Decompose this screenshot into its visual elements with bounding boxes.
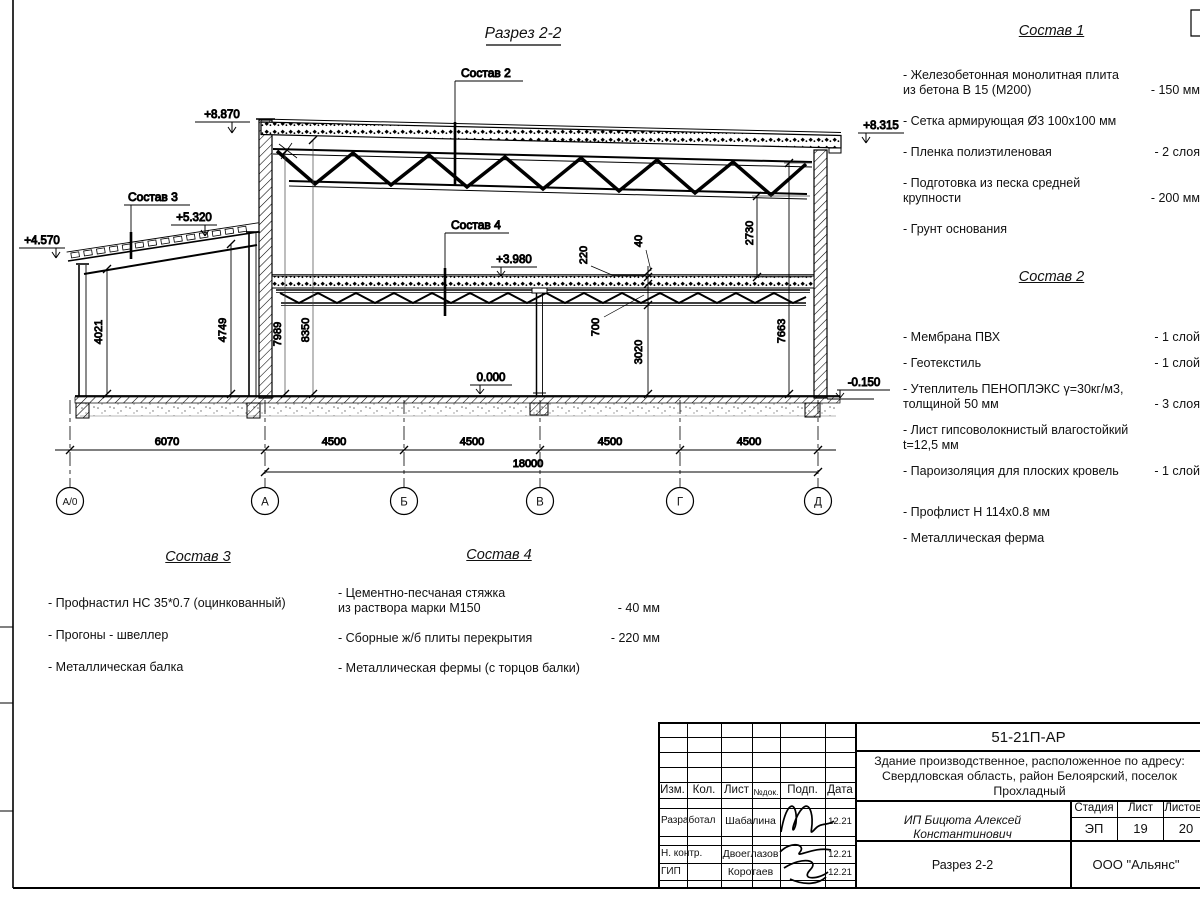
client-name: ИП Бицюта Алексей Константинович	[857, 813, 1068, 841]
dim-4749: 4749	[217, 240, 235, 398]
drawing-title-text: Разрез 2-2	[485, 25, 562, 42]
list-item: - Металлическая балка	[48, 660, 348, 675]
sheets-total: 20	[1164, 821, 1200, 836]
project-name-line: Здание производственное, расположенное п…	[857, 754, 1200, 768]
project-name-line: Прохладный	[857, 784, 1200, 798]
drawing-title: Разрез 2-2	[485, 25, 562, 45]
dim-label: 7663	[776, 319, 788, 343]
list-item: - Профлист Н 114х0.8 мм	[903, 505, 1200, 520]
sostav2-title: Состав 2	[903, 270, 1200, 288]
list-item: - Профнастил НС 35*0.7 (оцинкованный)	[48, 596, 348, 611]
dim-label: 8350	[300, 318, 312, 342]
list-item: - Сетка армирующая Ø3 100х100 мм	[903, 114, 1200, 129]
column-v	[532, 288, 547, 396]
elevation-label: +4.570	[24, 235, 60, 247]
name-cell: Шабалина	[721, 815, 780, 827]
col-header: Дата	[825, 784, 855, 796]
callout-label: Состав 3	[128, 190, 178, 204]
axis-label: А/0	[62, 497, 77, 508]
dim-slab-stack: 40 220 700 3020	[578, 235, 652, 398]
wall-left	[259, 120, 272, 398]
project-name-line: Свердловская область, район Белоярский, …	[857, 769, 1200, 783]
list-item: - Металлическая ферма	[903, 531, 1200, 546]
role-cell: Н. контр.	[661, 848, 719, 859]
dim-label: 4500	[322, 436, 346, 448]
dim-label: 40	[633, 235, 645, 247]
list-item: - Грунт основания	[903, 222, 1200, 237]
elevation-label: -0.150	[848, 377, 881, 389]
list-item: - Прогоны - швеллер	[48, 628, 348, 643]
sostav4-list: Состав 4 - Цементно-песчаная стяжка из р…	[338, 548, 660, 691]
list-item: - Лист гипсоволокнистый влагостойкий t=1…	[903, 423, 1200, 453]
list-item: - Пленка полиэтиленовая - 2 слоя	[903, 145, 1200, 160]
sheet-title-cell: Разрез 2-2	[855, 858, 1070, 872]
sheets-label: Листов	[1164, 802, 1200, 814]
axis-label: Д	[814, 497, 822, 509]
axis-label: А	[261, 497, 269, 509]
col-header: Лист	[721, 784, 752, 796]
col-header: №док.	[752, 787, 780, 797]
dim-label: 4500	[598, 436, 622, 448]
sostav1-title: Состав 1	[903, 24, 1200, 42]
list-item: - Цементно-песчаная стяжка из раствора м…	[338, 586, 660, 616]
list-item: - Сборные ж/б плиты перекрытия - 220 мм	[338, 631, 660, 646]
sostav1-list: Состав 1 - Железобетонная монолитная пли…	[903, 24, 1200, 253]
floor-ground	[75, 396, 874, 418]
dim-label: 4500	[737, 436, 761, 448]
foundation-pad	[247, 403, 260, 418]
dim-label: 18000	[513, 458, 544, 470]
axis-label: Г	[677, 497, 684, 509]
sostav4-title: Состав 4	[338, 548, 660, 566]
list-item: - Мембрана ПВХ - 1 слой	[903, 330, 1200, 345]
sostav3-title: Состав 3	[48, 550, 348, 568]
company-name: ООО "Альянс"	[1070, 857, 1200, 872]
list-item: - Железобетонная монолитная плита из бет…	[903, 68, 1200, 98]
wall-right	[814, 150, 827, 398]
col-header: Изм.	[658, 784, 687, 796]
elevation-marks: +8.870 +8.315 +4.570 +5.320 +3.980 0.000…	[19, 109, 904, 398]
stage-label: Стадия	[1071, 802, 1117, 814]
axis-label: Б	[400, 497, 408, 509]
elevation-label: +3.980	[496, 254, 532, 266]
elevation-label: 0.000	[477, 372, 506, 384]
foundation-pad	[76, 403, 89, 418]
roof-truss	[273, 143, 812, 199]
foundation-pad	[530, 403, 548, 415]
dim-label: 220	[578, 246, 590, 264]
name-cell: Двоеглазов	[721, 848, 780, 860]
callout-label: Состав 2	[461, 66, 511, 80]
dim-label: 700	[590, 318, 602, 336]
role-cell: ГИП	[661, 866, 719, 877]
dim-2730: 2730	[744, 192, 812, 281]
dim-label: 2730	[744, 221, 756, 245]
list-item: - Подготовка из песка средней крупности …	[903, 176, 1200, 206]
sostav3-list: Состав 3 - Профнастил НС 35*0.7 (оцинков…	[48, 550, 348, 692]
axis-bubbles: А/0 А Б В Г Д	[57, 488, 832, 515]
list-item: - Геотекстиль - 1 слой	[903, 356, 1200, 371]
doc-number: 51-21П-АР	[855, 729, 1200, 746]
sheet-label: Лист	[1118, 802, 1163, 814]
dim-label: 4500	[460, 436, 484, 448]
elevation-label: +8.870	[204, 109, 240, 121]
role-cell: Разработал	[661, 815, 719, 826]
sostav2-list: Состав 2 - Мембрана ПВХ - 1 слой - Геоте…	[903, 270, 1200, 557]
elevation-label: +8.315	[863, 120, 899, 132]
stage-value: ЭП	[1071, 821, 1117, 836]
dim-label: 4021	[93, 320, 105, 344]
col-header: Подп.	[780, 784, 825, 796]
axis-label: В	[536, 497, 544, 509]
list-item: - Металлическая фермы (с торцов балки)	[338, 661, 660, 676]
main-hall	[256, 119, 841, 398]
col-header: Кол.	[687, 784, 721, 796]
list-item: - Пароизоляция для плоских кровель - 1 с…	[903, 464, 1200, 479]
dim-label: 3020	[633, 340, 645, 364]
dim-7989: 7989	[272, 148, 289, 398]
dim-label: 4749	[217, 318, 229, 342]
sheet-number: 19	[1118, 821, 1163, 836]
name-cell: Коротаев	[721, 866, 780, 878]
dim-4021: 4021	[93, 265, 111, 398]
callout-label: Состав 4	[451, 218, 501, 232]
elevation-label: +5.320	[176, 212, 212, 224]
dim-label: 6070	[155, 436, 179, 448]
list-item: - Утеплитель ПЕНОПЛЭКС γ=30кг/м3, толщин…	[903, 382, 1200, 412]
dim-label: 7989	[272, 322, 284, 346]
